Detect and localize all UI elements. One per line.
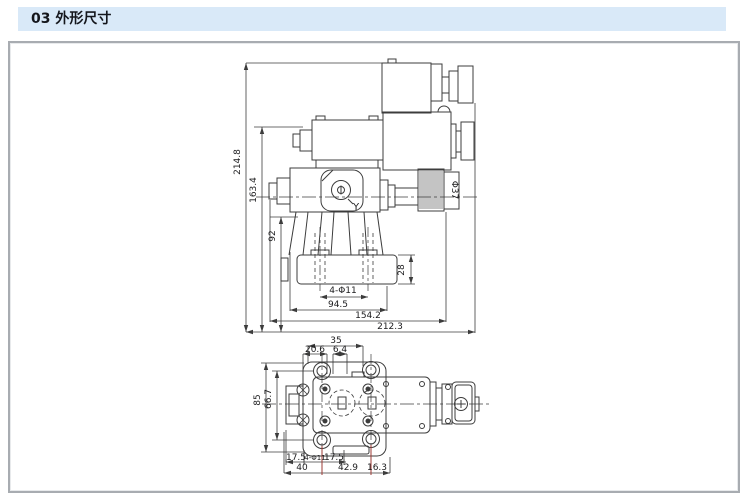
dim-17-5-left: 17.5 xyxy=(286,453,306,463)
knob-diameter-label: Φ37 xyxy=(449,181,459,200)
dim-total-height: 214.8 xyxy=(233,149,243,175)
dim-width-212: 212.3 xyxy=(377,322,403,332)
dim-height-92: 92 xyxy=(268,230,278,241)
main-valve-body xyxy=(269,168,380,212)
dim-holes-bottom: 4-Φ11 xyxy=(304,454,325,462)
dim-width-154: 154.2 xyxy=(355,311,381,321)
dim-85: 85 xyxy=(253,394,263,405)
dim-42-9: 42.9 xyxy=(338,463,358,473)
dim-holes-top: 4-Φ11 xyxy=(329,286,357,296)
dim-height-163: 163.4 xyxy=(249,177,259,203)
pilot-valve-body xyxy=(293,116,383,168)
side-view xyxy=(246,59,480,333)
port-circle-1 xyxy=(329,390,355,416)
solenoid-tube xyxy=(383,106,474,170)
dim-20-6: 20.6 xyxy=(305,345,325,355)
dimension-drawing: 214.8 163.4 92 28 4-Φ11 94.5 154.2 212.3… xyxy=(0,0,748,501)
port-y-label: Y xyxy=(352,202,360,213)
dim-6-4: 6.4 xyxy=(333,345,348,355)
bottom-view-dimensions: 35 20.6 6.4 85 66.7 17.5 4-Φ11 17.5 40 4… xyxy=(253,336,387,473)
dim-16-3: 16.3 xyxy=(367,463,387,473)
side-view-dimension-lines xyxy=(246,63,475,333)
dim-width-94: 94.5 xyxy=(328,300,348,310)
solenoid-plan xyxy=(430,382,479,426)
adjuster-knob xyxy=(380,169,459,211)
dim-17-5-right: 17.5 xyxy=(324,453,344,463)
side-view-dimensions: 214.8 163.4 92 28 4-Φ11 94.5 154.2 212.3… xyxy=(233,149,459,332)
mounting-base xyxy=(281,227,397,291)
top-solenoid-block xyxy=(382,59,473,113)
port-circle-2 xyxy=(359,390,385,416)
side-view-arrowheads xyxy=(244,63,475,334)
body-legs xyxy=(289,212,383,255)
dim-40: 40 xyxy=(296,463,308,473)
dim-66-7: 66.7 xyxy=(264,389,274,409)
dim-base-height: 28 xyxy=(397,264,407,276)
side-port-attachment xyxy=(286,384,309,426)
